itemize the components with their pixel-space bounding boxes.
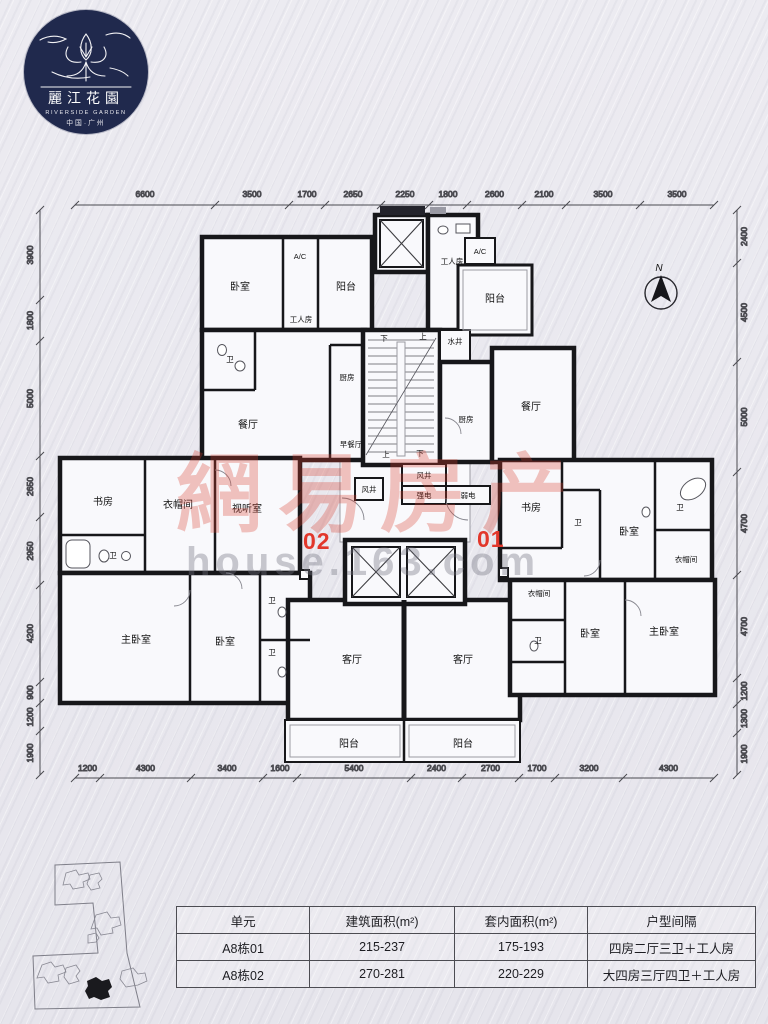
room-label-bath-l1: 卫 xyxy=(109,551,117,560)
dimension-label: 3900 xyxy=(25,245,35,264)
room-label-kitchen-r: 厨房 xyxy=(459,414,474,424)
room-label-bedroom-l: 卧室 xyxy=(215,635,235,648)
dimension-label: 1800 xyxy=(439,189,458,199)
col-header-layout: 户型间隔 xyxy=(588,907,756,934)
dimension-label: 1200 xyxy=(739,681,749,700)
dimension-label: 1800 xyxy=(25,311,35,330)
dimension-label: 2250 xyxy=(396,189,415,199)
room-label-balcony-tr: 阳台 xyxy=(485,292,505,305)
stair-label-up1: 上 xyxy=(419,332,427,341)
dimension-label: 900 xyxy=(25,685,35,699)
room-label-cloak-r1: 衣帽间 xyxy=(675,554,698,564)
dimension-label: 1300 xyxy=(739,709,749,728)
room-label-ac-tl: A/C xyxy=(294,252,307,261)
room-label-kitchen-l: 厨房 xyxy=(340,372,355,382)
netease-watermark-cn: 網易房产 xyxy=(176,424,584,549)
dimension-label: 4500 xyxy=(739,303,749,322)
room-label-living-l: 客厅 xyxy=(342,653,362,666)
unit-number-02: 02 xyxy=(303,528,331,555)
cell-layout-02: 大四房三厅四卫＋工人房 xyxy=(588,961,756,988)
unit-spec-table: 单元 建筑面积(m²) 套内面积(m²) 户型间隔 A8栋01 215-237 … xyxy=(176,906,756,988)
dimension-label: 2650 xyxy=(344,189,363,199)
table-row: A8栋01 215-237 175-193 四房二厅三卫＋工人房 xyxy=(177,934,756,961)
room-label-bath-l3: 卫 xyxy=(268,648,276,657)
room-label-worker-tl: 工人房 xyxy=(290,314,313,324)
dimension-label: 1700 xyxy=(528,763,547,773)
dimension-label: 1900 xyxy=(739,744,749,763)
cell-gross-02: 270-281 xyxy=(310,961,455,988)
riverside-garden-logo: 麗江花園 RIVERSIDE GARDEN 中国·广州 xyxy=(24,10,148,134)
table-row: A8栋02 270-281 220-229 大四房三厅四卫＋工人房 xyxy=(177,961,756,988)
dimension-label: 2400 xyxy=(427,763,446,773)
room-label-balcony-br: 阳台 xyxy=(453,737,473,750)
logo-location: 中国·广州 xyxy=(66,118,105,127)
dimension-label: 4300 xyxy=(136,763,155,773)
logo-flower-icon: 麗江花園 RIVERSIDE GARDEN 中国·广州 xyxy=(24,10,148,134)
dimension-label: 1600 xyxy=(271,763,290,773)
dimension-label: 5000 xyxy=(25,389,35,408)
stair-label-down1: 下 xyxy=(380,334,388,343)
dimension-label: 3500 xyxy=(594,189,613,199)
north-compass-icon: N xyxy=(645,263,677,309)
dimension-label: 2950 xyxy=(25,541,35,560)
site-key-map xyxy=(30,853,165,1018)
room-label-balcony-bl: 阳台 xyxy=(339,737,359,750)
room-label-master-r: 主卧室 xyxy=(649,625,679,638)
dimension-label: 1200 xyxy=(25,707,35,726)
dimension-label: 3200 xyxy=(580,763,599,773)
room-label-bedroom-r1: 卧室 xyxy=(619,525,639,538)
floorplan-page: { "logo": { "title": "麗江花園", "subtitle":… xyxy=(0,0,768,1024)
room-label-master-l: 主卧室 xyxy=(121,633,151,646)
room-label-bath-l2: 卫 xyxy=(268,596,276,605)
dimension-label: 3500 xyxy=(668,189,687,199)
dimension-label: 2700 xyxy=(481,763,500,773)
dimension-label: 4700 xyxy=(739,514,749,533)
room-label-bath-tl: 卫 xyxy=(226,355,234,364)
room-label-water-shaft: 水井 xyxy=(448,336,463,346)
dimension-label: 4700 xyxy=(739,617,749,636)
dimension-label: 2100 xyxy=(535,189,554,199)
dimension-label: 2600 xyxy=(485,189,504,199)
dimension-label: 4300 xyxy=(659,763,678,773)
cell-net-01: 175-193 xyxy=(454,934,587,961)
room-label-worker-top: 工人房 xyxy=(441,256,464,266)
cell-unit-02: A8栋02 xyxy=(177,961,310,988)
room-label-study-l: 书房 xyxy=(93,495,113,508)
col-header-net-area: 套内面积(m²) xyxy=(454,907,587,934)
room-label-bath-r3: 卫 xyxy=(534,636,542,645)
cell-layout-01: 四房二厅三卫＋工人房 xyxy=(588,934,756,961)
room-label-bedroom-tl: 卧室 xyxy=(230,280,250,293)
room-label-balcony-tl: 阳台 xyxy=(336,280,356,293)
dimension-label: 4200 xyxy=(25,624,35,643)
room-label-cloak-r2: 衣帽间 xyxy=(528,588,551,598)
room-label-living-r: 客厅 xyxy=(453,653,473,666)
dimension-label: 1900 xyxy=(25,743,35,762)
dimension-label: 1700 xyxy=(298,189,317,199)
col-header-unit: 单元 xyxy=(177,907,310,934)
logo-title: 麗江花園 xyxy=(48,91,124,107)
dimension-label: 3500 xyxy=(243,189,262,199)
room-label-bedroom-r2: 卧室 xyxy=(580,627,600,640)
dimension-label: 5000 xyxy=(739,407,749,426)
cell-unit-01: A8栋01 xyxy=(177,934,310,961)
compass-n-label: N xyxy=(655,263,663,274)
unit-number-01: 01 xyxy=(477,526,505,553)
col-header-gross-area: 建筑面积(m²) xyxy=(310,907,455,934)
room-label-bath-r2: 卫 xyxy=(676,503,684,512)
dimension-label: 6600 xyxy=(136,189,155,199)
cell-gross-01: 215-237 xyxy=(310,934,455,961)
dimension-label: 2650 xyxy=(25,477,35,496)
dimension-label: 3400 xyxy=(218,763,237,773)
cell-net-02: 220-229 xyxy=(454,961,587,988)
dimension-label: 2400 xyxy=(739,227,749,246)
room-label-ac-tr: A/C xyxy=(474,247,487,256)
dimension-label: 5400 xyxy=(345,763,364,773)
logo-subtitle: RIVERSIDE GARDEN xyxy=(45,110,126,116)
room-label-dining-r: 餐厅 xyxy=(521,400,541,413)
dimension-label: 1200 xyxy=(78,763,97,773)
table-header-row: 单元 建筑面积(m²) 套内面积(m²) 户型间隔 xyxy=(177,907,756,934)
